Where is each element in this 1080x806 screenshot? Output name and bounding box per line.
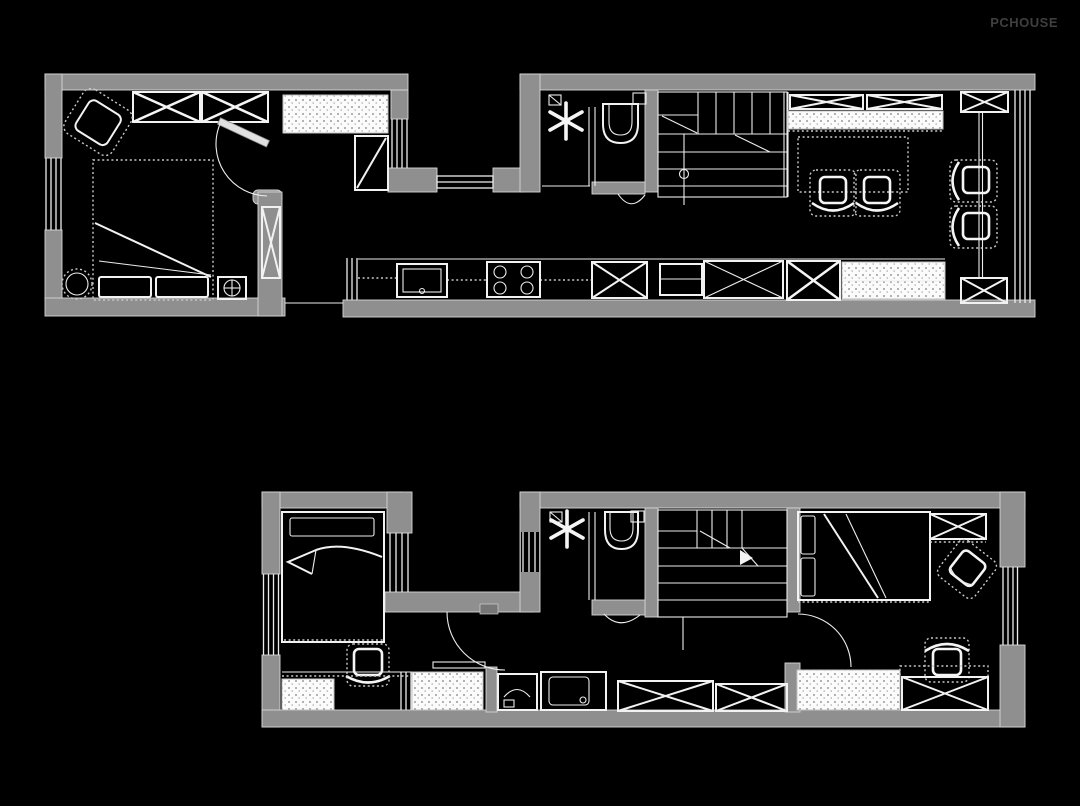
shower-head-icon bbox=[550, 103, 582, 139]
upper-lounge-cushion bbox=[60, 85, 135, 159]
upper-round-side-table bbox=[62, 269, 92, 299]
cooktop bbox=[487, 262, 540, 297]
toilet-icon bbox=[605, 512, 638, 549]
lower-windows bbox=[264, 532, 1018, 710]
x-cabinet bbox=[716, 684, 787, 711]
lower-radiator bbox=[412, 662, 485, 710]
window-chair bbox=[950, 160, 997, 202]
dining-chair bbox=[810, 170, 856, 216]
window-kitchen-west bbox=[347, 258, 357, 300]
floorplan-canvas: PCHOUSE bbox=[0, 0, 1080, 806]
x-cabinet bbox=[592, 262, 647, 298]
toilet-icon bbox=[603, 104, 638, 143]
lower-staircase bbox=[658, 510, 787, 650]
window-left bbox=[46, 158, 61, 230]
kitchen-sink bbox=[397, 264, 447, 297]
study-chair bbox=[925, 638, 969, 682]
upper-nightstand-lamp bbox=[218, 277, 246, 299]
upper-window-chairs bbox=[950, 160, 997, 248]
x-cabinet bbox=[787, 261, 840, 300]
divider-stripes bbox=[401, 672, 411, 710]
window-right bbox=[1003, 567, 1018, 645]
lower-rug bbox=[797, 670, 900, 710]
x-cabinet bbox=[902, 677, 988, 710]
upper-kitchen bbox=[358, 259, 945, 300]
lower-entry-door bbox=[447, 612, 505, 670]
pchouse-watermark: PCHOUSE bbox=[990, 15, 1058, 30]
window-left bbox=[264, 574, 279, 655]
lower-double-bed bbox=[798, 512, 930, 602]
window-corridor bbox=[437, 176, 493, 188]
lower-single-bed bbox=[282, 512, 384, 642]
upper-sliding-partition bbox=[961, 92, 1008, 303]
upper-floor-plan bbox=[45, 74, 1035, 317]
window-east bbox=[1015, 90, 1030, 303]
lower-study-corner bbox=[900, 638, 988, 710]
upper-dining bbox=[788, 95, 943, 216]
window-bath-west bbox=[521, 532, 539, 572]
lower-bedroom-door bbox=[798, 614, 851, 667]
dining-chair bbox=[854, 170, 900, 216]
x-cabinet bbox=[618, 681, 713, 711]
shelf-cabinet bbox=[660, 264, 702, 295]
floorplans-drawing bbox=[0, 0, 1080, 806]
lower-walls bbox=[262, 492, 1025, 727]
window-chair bbox=[950, 206, 997, 248]
upper-double-bed bbox=[93, 160, 213, 300]
window-entry bbox=[392, 119, 407, 168]
lower-floor-plan bbox=[262, 492, 1025, 727]
lower-x-cabinet-top bbox=[930, 514, 986, 542]
upper-wardrobe-x-cabinets bbox=[133, 92, 268, 122]
upper-mirror-cabinet bbox=[355, 136, 388, 190]
lower-laundry bbox=[498, 672, 606, 710]
upper-staircase bbox=[658, 92, 788, 205]
upper-shoe-cabinet bbox=[283, 95, 388, 133]
bench-hatched bbox=[788, 111, 943, 129]
lower-desk-chair bbox=[346, 644, 390, 686]
laundry-sink bbox=[498, 674, 537, 710]
lower-hall-cabinets bbox=[618, 681, 787, 711]
window-bedroom-east bbox=[390, 533, 408, 592]
washing-machine bbox=[541, 672, 606, 710]
wide-x-cabinet bbox=[704, 261, 783, 298]
lower-rotated-armchair bbox=[935, 537, 1000, 602]
long-hatched-cabinet bbox=[842, 262, 945, 299]
upper-bedroom-door bbox=[216, 118, 269, 196]
dining-table bbox=[798, 137, 908, 192]
